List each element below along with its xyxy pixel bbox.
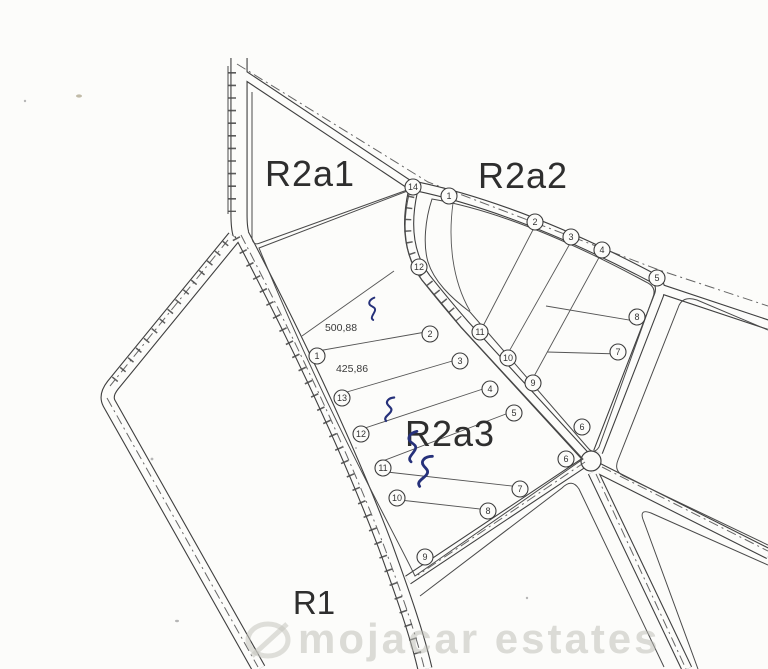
plot-number-text: 8	[485, 506, 490, 516]
parcel-r2a2-divider-2	[481, 224, 536, 330]
parcel-southeast-outline	[642, 512, 768, 669]
road-west	[108, 237, 259, 669]
plot-number-text: 2	[427, 329, 432, 339]
road-north-vertical	[239, 58, 241, 234]
plot-number-text: 9	[422, 552, 427, 562]
plot-number-text: 12	[356, 429, 366, 439]
road-fills	[108, 58, 768, 669]
watermark-text: mojacar estates	[298, 615, 661, 662]
measurement-425-86: 425,86	[336, 363, 368, 375]
parcel-r2a3-divider-7	[400, 500, 489, 510]
plot-number-text: 3	[457, 356, 462, 366]
plot-marker-R2a2-2: 2	[527, 214, 543, 230]
plot-number-text: 6	[563, 454, 568, 464]
plot-number-text: 9	[530, 378, 535, 388]
measurement-500-88: 500,88	[325, 322, 357, 334]
plot-number-text: 1	[446, 191, 451, 201]
speck	[526, 597, 528, 599]
handwritten-marks	[368, 298, 433, 488]
plot-number-text: 2	[532, 217, 537, 227]
plot-marker-R2a3-2: 2	[422, 326, 438, 342]
zone-label-r2a3: R2a3	[405, 413, 495, 454]
plot-number-text: 3	[568, 232, 573, 242]
plot-number-text: 7	[615, 347, 620, 357]
parcel-r2a2-divider-5	[546, 306, 641, 322]
plot-marker-R2a3-11: 11	[375, 460, 391, 476]
plot-marker-R2a2-8: 8	[629, 309, 645, 325]
plot-marker-R2a3-13: 13	[334, 390, 350, 406]
plot-number-text: 1	[314, 351, 319, 361]
plot-marker-R2a3-4: 4	[482, 381, 498, 397]
plot-marker-R2a3-7: 7	[512, 481, 528, 497]
plot-marker-R2a2-1: 1	[441, 188, 457, 204]
plot-marker-R2a3-5: 5	[506, 405, 522, 421]
speck	[151, 458, 154, 461]
plot-number-text: 11	[475, 327, 484, 337]
parcel-map: R2a1 R2a2 R2a3 R1 500,88 425,86 12345678…	[0, 0, 768, 669]
plot-number-text: 13	[337, 393, 347, 403]
plot-marker-R2a2-3: 3	[563, 229, 579, 245]
parcel-r2a2-divider-1	[451, 203, 470, 311]
roundabout-node	[581, 451, 601, 471]
watermark: mojacar estates	[248, 615, 661, 662]
blue-ink-squiggle	[368, 298, 379, 321]
plan-scan-page: R2a1 R2a2 R2a3 R1 500,88 425,86 12345678…	[0, 0, 768, 669]
plot-number-text: 4	[599, 245, 604, 255]
plot-number-text: 4	[487, 384, 492, 394]
zone-label-r2a2: R2a2	[478, 155, 568, 196]
parcel-r2a2-divider-6	[547, 352, 620, 354]
speck	[355, 447, 357, 449]
parcel-r2a3-divider-6	[387, 472, 521, 487]
plot-marker-R2a2-10: 10	[500, 350, 516, 366]
plot-number-text: 7	[517, 484, 522, 494]
blue-ink-squiggle	[418, 455, 432, 488]
centerline-west-lower	[107, 398, 258, 667]
plot-marker-R2a3-8: 8	[480, 503, 496, 519]
plot-marker-R2a2-12: 12	[411, 259, 427, 275]
blue-ink-squiggle	[385, 397, 394, 421]
zone-label-r2a1: R2a1	[265, 153, 355, 194]
plot-marker-R2a3-3: 3	[452, 353, 468, 369]
parcel-r2a2-divider-3	[507, 240, 572, 355]
plot-marker-R2a2-5: 5	[649, 270, 665, 286]
plot-number-text: 5	[654, 273, 659, 283]
speck	[175, 620, 179, 622]
plot-marker-junction-14: 14	[405, 179, 421, 195]
plot-number-text: 6	[579, 422, 584, 432]
speck	[24, 100, 26, 102]
plot-marker-R2a3-9: 9	[417, 549, 433, 565]
plot-marker-R2a3-10: 10	[389, 490, 405, 506]
plot-marker-R2a2-4: 4	[594, 242, 610, 258]
plot-number-text: 8	[634, 312, 639, 322]
speck	[76, 94, 82, 97]
plot-marker-R2a2-6: 6	[574, 419, 590, 435]
plot-marker-R2a2-9: 9	[525, 375, 541, 391]
plot-marker-R2a2-7: 7	[610, 344, 626, 360]
plot-number-text: 10	[392, 493, 402, 503]
plot-number-text: 5	[511, 408, 516, 418]
plot-marker-R2a2-11: 11	[472, 324, 488, 340]
plot-number-text: 14	[408, 182, 418, 192]
plot-number-text: 11	[378, 463, 387, 473]
plot-marker-R2a3-1: 1	[309, 348, 325, 364]
parcel-r2a2-divider-4	[532, 252, 602, 380]
plot-marker-R2a3-12: 12	[353, 426, 369, 442]
plot-number-text: 12	[414, 262, 424, 272]
plot-marker-R2a3-6: 6	[558, 451, 574, 467]
plot-number-text: 10	[503, 353, 513, 363]
